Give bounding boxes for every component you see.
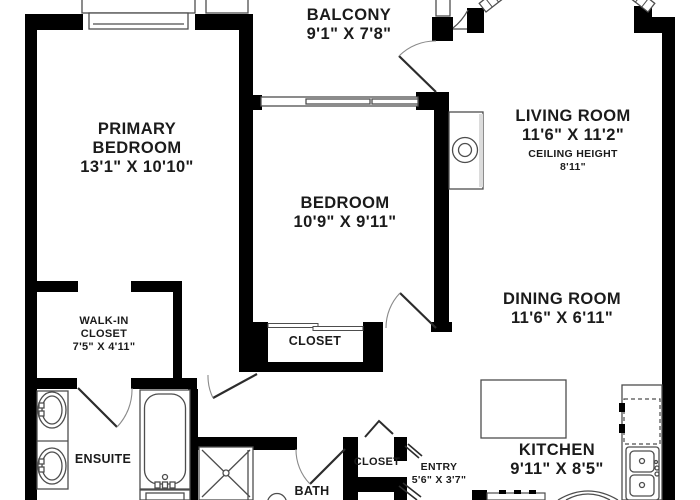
balcony-side-window: [436, 0, 450, 16]
primary-bay-window-outer: [82, 0, 195, 13]
walls: [25, 6, 675, 500]
primary-bay-window-sill: [89, 13, 188, 29]
room-name: BALCONY: [307, 6, 392, 25]
balcony-door-leaf: [399, 56, 436, 92]
ceiling-height-value: 8'11": [515, 161, 630, 174]
floorplan-drawing: [0, 0, 700, 500]
entry-closet-right-lower-wall: [394, 477, 407, 500]
closet-wall-a: [28, 281, 78, 292]
bath-door-arc: [296, 449, 310, 484]
bedroom-label: BEDROOM 10'9" X 9'11": [293, 194, 396, 232]
bathtub-icon: [140, 390, 190, 500]
fireplace: [449, 112, 483, 189]
window-post-left: [239, 95, 262, 110]
small-bay-window: [206, 0, 248, 13]
entry-closet-label: CLOSET: [354, 456, 400, 469]
bedroom-door-leaf: [400, 293, 436, 328]
ensuite-wall-b: [131, 378, 197, 389]
balcony-label: BALCONY 9'1" X 7'8": [307, 6, 392, 44]
room-dims: 13'1" X 10'10": [80, 158, 194, 177]
balcony-door-arc: [399, 41, 436, 56]
room-dims: 9'11" X 8'5": [510, 460, 603, 479]
toilet-icon: [268, 494, 287, 500]
ensuite-door-arc: [117, 388, 132, 427]
room-name: PRIMARY: [80, 120, 194, 139]
left-outer-wall: [25, 14, 37, 500]
bedroom-door-arc: [386, 293, 400, 328]
fridge-icon: [624, 399, 660, 444]
ensuite-vanity: [37, 391, 68, 489]
floorplan: BALCONY 9'1" X 7'8" PRIMARY BEDROOM 13'1…: [0, 0, 700, 500]
entry-label: ENTRY 5'6" X 3'7": [412, 461, 466, 486]
bath-door-leaf: [310, 449, 345, 484]
ensuite-wall-a: [28, 378, 77, 389]
bath-label: BATH: [295, 484, 330, 498]
bedroom-window-pane-1: [306, 99, 370, 104]
living-room-label: LIVING ROOM 11'6" X 11'2" CEILING HEIGHT…: [515, 107, 630, 173]
room-dims: 5'6" X 3'7": [412, 474, 466, 487]
room-name: ENSUITE: [75, 452, 131, 466]
room-name: CLOSET: [73, 328, 136, 341]
ensuite-label: ENSUITE: [75, 452, 131, 466]
right-outer-wall: [662, 17, 675, 500]
kitchen-island: [481, 380, 566, 438]
room-name: BATH: [295, 484, 330, 498]
room-dims: 10'9" X 9'11": [293, 213, 396, 232]
walk-in-closet-label: WALK-IN CLOSET 7'5" X 4'11": [73, 315, 136, 354]
bay-post-left: [467, 8, 484, 33]
bedroom-living-wall: [434, 92, 449, 332]
counter-strip: [487, 490, 545, 500]
kitchen-label: KITCHEN 9'11" X 8'5": [510, 441, 603, 479]
ensuite-door-leaf: [78, 388, 117, 427]
room-name: BEDROOM: [293, 194, 396, 213]
room-name: CLOSET: [289, 334, 342, 348]
bedroom-left-wall: [239, 14, 253, 332]
bedroom-closet-label: CLOSET: [289, 334, 342, 348]
room-name: BEDROOM: [80, 139, 194, 158]
stove-icon: [558, 491, 618, 500]
room-dims: 9'1" X 7'8": [307, 25, 392, 44]
top-wall-left: [25, 14, 83, 30]
primary-bedroom-label: PRIMARY BEDROOM 13'1" X 10'10": [80, 120, 194, 177]
room-name: CLOSET: [354, 456, 400, 469]
windows: [82, 0, 467, 106]
room-name: KITCHEN: [510, 441, 603, 460]
kitchen-counter: [619, 385, 662, 500]
arched-window-right: [612, 0, 655, 12]
entry-closet-door: [365, 421, 393, 437]
dining-room-label: DINING ROOM 11'6" X 6'11": [503, 290, 621, 328]
ceiling-height-label: CEILING HEIGHT: [515, 148, 630, 161]
closet-slider-2: [313, 327, 363, 331]
hall-door-arc: [208, 375, 213, 398]
room-name: WALK-IN: [73, 315, 136, 328]
closet-slider-1: [268, 324, 318, 328]
shower-icon: [199, 447, 253, 500]
room-name: LIVING ROOM: [515, 107, 630, 126]
bedroom-closet-bottom-wall: [253, 362, 375, 372]
room-dims: 11'6" X 6'11": [503, 309, 621, 328]
room-dims: 11'6" X 11'2": [515, 126, 630, 145]
kitchen-post: [472, 490, 487, 500]
kitchen-sink-icon: [626, 447, 659, 500]
arched-window-left: [479, 0, 522, 12]
hall-door-leaf: [213, 374, 257, 398]
balcony-latch-post: [432, 17, 453, 41]
room-dims: 7'5" X 4'11": [73, 341, 136, 354]
bedroom-window-pane-2: [372, 99, 418, 104]
bay-curve-left: [453, 10, 468, 28]
room-name: DINING ROOM: [503, 290, 621, 309]
room-name: ENTRY: [412, 461, 466, 474]
closet-right-wall: [173, 281, 182, 389]
